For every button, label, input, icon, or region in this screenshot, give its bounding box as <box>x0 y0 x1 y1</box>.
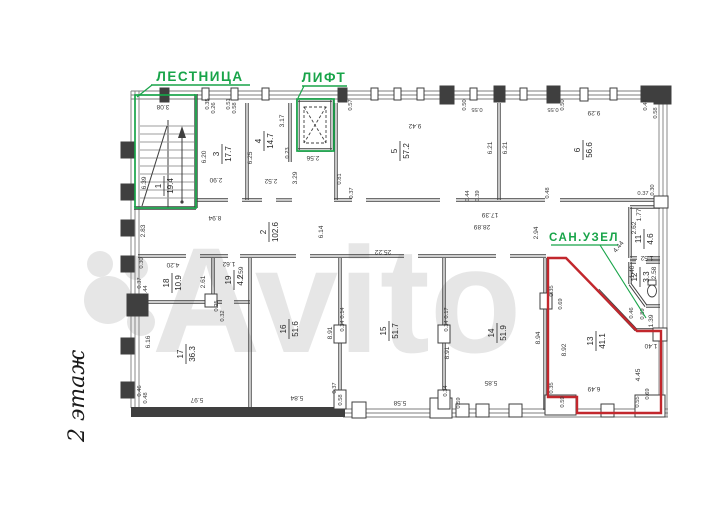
dimension-label: 0.50 <box>560 99 566 110</box>
room-area: 17.7 <box>224 146 233 162</box>
room-number: 15 <box>379 326 388 335</box>
window-pier <box>601 404 614 417</box>
dimension-label: 0.58 <box>653 107 659 118</box>
wall-pier <box>494 86 505 102</box>
dimension-label: 0.34 <box>340 320 346 332</box>
dimension-label: 0.30 <box>650 184 656 195</box>
dimension-label: 8.91 <box>327 326 334 339</box>
interior-wall <box>631 283 647 305</box>
dimension-label: 0.58 <box>338 394 344 405</box>
dimension-label: 1.77 <box>636 208 643 221</box>
dimension-label: 2.94 <box>533 226 540 239</box>
window-pier <box>231 88 238 100</box>
exterior-wall-solid <box>131 407 345 417</box>
stair-arrow-origin <box>180 200 183 203</box>
dimension-label: 0.58 <box>232 102 238 113</box>
room-area: 4.6 <box>646 233 655 245</box>
window-pier <box>352 402 366 418</box>
dimension-label: 0.44 <box>143 285 149 297</box>
room-label: 414.7 <box>254 131 275 151</box>
staircase-callout-label: ЛЕСТНИЦА <box>156 69 243 84</box>
dimension-label: 5.97 <box>190 396 203 403</box>
dimension-label: 0.17 <box>444 307 450 318</box>
dimension-label: 3.29 <box>292 171 299 184</box>
room-number: 16 <box>279 324 288 333</box>
dimension-label: 0.55 <box>635 396 641 407</box>
elevator-callout-label: ЛИФТ <box>302 70 346 85</box>
wall-pier <box>121 256 134 272</box>
dimension-label: 2.59 <box>238 266 245 279</box>
dimension-label: 0.37 <box>637 191 648 197</box>
wall-pier <box>121 382 134 398</box>
dimension-label: 0.59 <box>560 396 566 407</box>
stair-arrow-head <box>178 126 186 138</box>
dimension-label: 0.48 <box>143 392 149 403</box>
window-pier <box>394 88 401 100</box>
wall-pier <box>121 220 134 236</box>
floor-plan-page: Avito 119.42102.6317.7414.7557.2656.6114… <box>0 0 720 509</box>
dimension-label: 0.81 <box>337 173 343 184</box>
dimension-label: 6.39 <box>141 176 148 189</box>
wall-pier <box>121 184 134 200</box>
dimension-label: 0.39 <box>475 190 481 201</box>
room-number: 3 <box>212 151 221 156</box>
dimension-label: 5.85 <box>484 379 497 386</box>
room-number: 17 <box>176 349 185 358</box>
window-pier <box>520 88 527 100</box>
dimension-label: 1.62 <box>222 260 235 267</box>
callout-leader-line <box>298 86 304 98</box>
room-number: 6 <box>573 147 582 152</box>
room-area: 51.6 <box>291 321 300 337</box>
dimension-label: 28.89 <box>473 223 490 230</box>
dimension-label: 0.69 <box>645 388 651 399</box>
window-pier <box>580 88 588 101</box>
dimension-label: 1.40 <box>644 342 657 349</box>
window-pier <box>202 88 209 100</box>
dimension-label: 6.21 <box>487 141 494 154</box>
dimension-label: 2.58 <box>651 266 658 279</box>
watermark: Avito <box>84 216 521 384</box>
dimension-label: 0.32 <box>220 310 226 321</box>
dimension-label: 0.48 <box>545 187 551 198</box>
dimension-label: 5.58 <box>393 399 406 406</box>
dimension-label: 3.08 <box>156 103 169 110</box>
dimension-label: 0.34 <box>443 385 449 397</box>
room-label: 119.4 <box>154 176 175 196</box>
room-area: 36.3 <box>188 346 197 362</box>
dimension-label: 6.16 <box>145 335 152 348</box>
dimension-label: 0.57 <box>348 99 354 110</box>
dimension-label: 8.94 <box>535 331 542 344</box>
window-pier <box>476 404 489 417</box>
room-number: 18 <box>162 278 171 287</box>
wall-pier <box>440 86 454 104</box>
window-pier <box>509 404 522 417</box>
dimension-label: 0.44 <box>465 190 471 202</box>
room-label: 317.7 <box>212 144 233 164</box>
dimension-label: 2.61 <box>200 275 207 288</box>
dimension-label: 4.20 <box>166 261 179 268</box>
dimension-label: 9.42 <box>408 122 421 129</box>
dimension-label: 6.25 <box>247 151 254 164</box>
dimension-label: 0.55 <box>547 106 558 112</box>
room-area: 102.6 <box>271 221 280 242</box>
dimension-label: 0.23 <box>285 147 291 158</box>
watermark-dot <box>84 276 132 324</box>
window-pier <box>417 88 424 100</box>
window-pier <box>470 88 477 100</box>
dimension-label: 3.17 <box>279 114 286 127</box>
dimension-label: 0.55 <box>471 106 482 112</box>
dimension-label: 0.59 <box>456 397 462 408</box>
room-number: 1 <box>154 183 163 188</box>
dimension-label: 0.46 <box>629 307 635 318</box>
callout-leader-line <box>600 245 646 318</box>
room-number: 2 <box>259 229 268 234</box>
dimension-label: 6.21 <box>502 141 509 154</box>
floor-plan-drawing: Avito 119.42102.6317.7414.7557.2656.6114… <box>0 0 720 509</box>
dimension-label: 4.45 <box>635 368 642 381</box>
room-number: 13 <box>586 336 595 345</box>
room-area: 14.7 <box>266 133 275 149</box>
dimension-label: 0.44 <box>643 99 649 111</box>
room-area: 51.7 <box>391 323 400 339</box>
window-pier <box>610 88 617 100</box>
dimension-label: 6.14 <box>318 225 325 238</box>
room-area: 19.4 <box>166 178 175 194</box>
room-label: 557.2 <box>390 141 411 161</box>
dimension-label: 25.22 <box>374 248 391 255</box>
dimension-label: 17.39 <box>481 211 498 218</box>
dimension-label: 2.83 <box>140 224 147 237</box>
dimension-label: 0.35 <box>549 382 555 393</box>
dimension-label: 0.14 <box>340 307 346 319</box>
floor-title: 2 этаж <box>65 350 90 443</box>
room-label: 1341.1 <box>586 331 607 351</box>
dimension-label: 2.52 <box>264 177 277 184</box>
watermark-dot <box>87 251 113 277</box>
dimension-label: 8.91 <box>444 346 451 359</box>
room-area: 10.9 <box>174 275 183 291</box>
room-area: 56.6 <box>585 142 594 158</box>
room-area: 51.9 <box>499 325 508 341</box>
room-area: 57.2 <box>402 143 411 159</box>
room-number: 19 <box>224 275 233 284</box>
window-pier <box>371 88 378 100</box>
dimension-label: 0.34 <box>444 320 450 332</box>
room-number: 11 <box>634 234 643 243</box>
dimension-label: 0.30 <box>139 257 145 268</box>
dimension-label: 0.69 <box>558 298 564 309</box>
room-label: 656.6 <box>573 140 594 160</box>
dimension-label: 2.90 <box>209 176 222 183</box>
bathroom-callout-label: САН.УЗЕЛ <box>549 232 619 244</box>
dimension-label: 0.37 <box>332 382 338 393</box>
wall-pier <box>121 338 134 354</box>
toilet-icon <box>648 285 657 297</box>
wall-pier <box>338 88 347 102</box>
dimension-label: 0.25 <box>214 300 220 311</box>
room-number: 14 <box>487 328 496 337</box>
dimension-label: 8.94 <box>208 214 221 221</box>
dimension-label: 2.62 <box>631 221 638 234</box>
room-number: 5 <box>390 148 399 153</box>
room-area: 3.3 <box>642 271 651 283</box>
dimension-label: 6.20 <box>201 150 208 163</box>
dimension-label: 0.50 <box>462 99 468 110</box>
dimension-label: 5.84 <box>290 394 303 401</box>
floor-title-text: 2 этаж <box>65 350 90 443</box>
dimension-label: 0.26 <box>211 102 217 113</box>
wall-pier <box>547 86 560 103</box>
window-pier <box>262 88 269 100</box>
wall-pier <box>121 142 134 158</box>
dimension-label: 1.52 <box>640 254 653 261</box>
dimension-label: 0.37 <box>349 187 355 198</box>
room-area: 41.1 <box>598 333 607 349</box>
dimension-label: 1.40 <box>629 265 636 278</box>
dimension-label: 2.56 <box>306 154 319 161</box>
dimension-label: 0.35 <box>549 285 555 296</box>
dimension-label: 9.29 <box>587 109 600 116</box>
wall-pier <box>654 86 671 104</box>
window-pier <box>654 196 668 208</box>
dimension-label: 8.92 <box>561 343 568 356</box>
room-number: 4 <box>254 138 263 143</box>
dimension-label: 6.49 <box>587 385 600 392</box>
dimension-label: 1.39 <box>648 314 655 327</box>
